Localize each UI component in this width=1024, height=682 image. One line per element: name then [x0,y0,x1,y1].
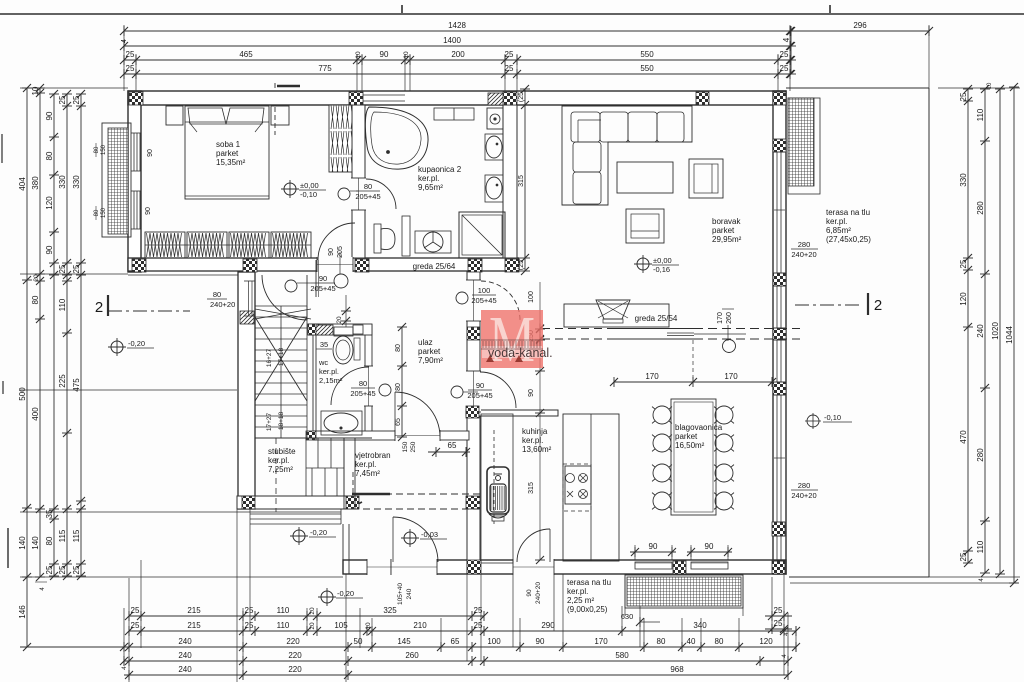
svg-text:-0,20: -0,20 [337,589,354,598]
svg-text:kupaonica 2: kupaonica 2 [418,165,462,174]
svg-text:550: 550 [640,50,654,59]
svg-text:240+20: 240+20 [210,300,235,309]
svg-text:25: 25 [774,606,783,615]
svg-text:40: 40 [687,637,696,646]
svg-text:968: 968 [670,665,684,674]
svg-text:205+45: 205+45 [355,192,380,201]
svg-text:775: 775 [318,64,332,73]
svg-text:80: 80 [45,151,54,160]
svg-text:2: 2 [95,299,103,316]
svg-text:146: 146 [18,605,27,619]
svg-text:65: 65 [395,418,402,426]
svg-text:25: 25 [131,606,140,615]
svg-text:1020: 1020 [991,322,1000,340]
svg-text:330: 330 [72,175,81,189]
svg-text:630: 630 [621,612,634,621]
svg-text:330: 330 [58,175,67,189]
svg-text:330: 330 [959,173,968,187]
svg-text:parket: parket [418,347,441,356]
svg-text:65: 65 [448,441,457,450]
svg-text:325: 325 [383,606,397,615]
svg-text:-0,16: -0,16 [653,265,670,274]
svg-text:17+27: 17+27 [266,412,273,431]
svg-text:13,60m²: 13,60m² [522,445,552,454]
svg-text:120: 120 [959,292,968,306]
svg-text:210: 210 [413,621,427,630]
svg-text:2: 2 [874,297,882,314]
svg-text:240: 240 [178,665,192,674]
svg-text:90: 90 [45,245,54,254]
svg-text:205+45: 205+45 [467,391,492,400]
svg-text:240: 240 [976,324,985,338]
svg-text:110: 110 [277,606,290,615]
svg-text:35: 35 [320,340,328,349]
svg-text:25: 25 [45,565,54,574]
svg-text:115: 115 [72,529,81,542]
svg-text:25: 25 [774,619,783,628]
svg-text:240: 240 [178,637,192,646]
svg-text:±0,00: ±0,00 [653,256,672,265]
svg-text:250: 250 [410,441,417,452]
svg-text:280: 280 [976,201,985,215]
svg-text:150: 150 [101,207,107,218]
svg-text:-0,20: -0,20 [310,528,327,537]
svg-text:404: 404 [18,177,27,191]
svg-text:25: 25 [72,264,81,273]
svg-text:90: 90 [528,389,535,397]
svg-text:110: 110 [976,108,985,121]
svg-text:220: 220 [288,665,302,674]
svg-text:M: M [489,303,535,376]
svg-text:90: 90 [328,248,335,256]
svg-text:boravak: boravak [712,217,741,226]
svg-text:170: 170 [594,637,608,646]
svg-text:20: 20 [33,274,40,282]
svg-text:200: 200 [451,50,465,59]
svg-text:1044: 1044 [1005,326,1014,344]
svg-text:25: 25 [474,621,483,630]
svg-text:±0,00: ±0,00 [300,181,319,190]
svg-text:25: 25 [126,50,135,59]
svg-text:20: 20 [336,316,343,324]
svg-text:80: 80 [395,344,402,352]
svg-text:205+45: 205+45 [310,284,335,293]
svg-text:50: 50 [354,637,363,646]
svg-text:ker.pl.: ker.pl. [418,174,439,183]
svg-text:220: 220 [288,651,302,660]
svg-text:80: 80 [45,536,54,545]
svg-text:100: 100 [528,291,535,303]
svg-text:90: 90 [526,589,533,597]
svg-text:80: 80 [657,637,666,646]
svg-text:205: 205 [337,246,344,258]
svg-text:280: 280 [798,240,811,249]
svg-text:20: 20 [309,607,316,615]
svg-text:340: 340 [693,621,707,630]
svg-text:145: 145 [397,637,411,646]
svg-text:260: 260 [726,312,733,324]
svg-text:170: 170 [717,312,724,324]
svg-text:2,15m²: 2,15m² [319,376,343,385]
svg-text:parket: parket [675,432,698,441]
svg-text:100: 100 [478,286,491,295]
svg-text:315: 315 [518,175,525,187]
svg-text:10: 10 [31,86,40,95]
svg-text:25: 25 [245,606,254,615]
svg-text:-0,20: -0,20 [128,339,145,348]
svg-text:140: 140 [18,536,27,550]
svg-text:25: 25 [131,621,140,630]
svg-text:120: 120 [759,637,773,646]
svg-text:90: 90 [319,274,327,283]
svg-text:ker.pl.: ker.pl. [522,436,543,445]
svg-text:296: 296 [853,21,867,30]
svg-text:150: 150 [101,144,107,155]
svg-text:80: 80 [213,290,221,299]
svg-text:parket: parket [216,149,239,158]
svg-text:25: 25 [959,92,968,101]
svg-text:290: 290 [541,621,555,630]
svg-text:9,65m²: 9,65m² [418,183,443,192]
svg-text:80: 80 [31,295,40,304]
svg-text:315: 315 [528,482,535,494]
svg-text:4: 4 [781,654,788,658]
svg-text:280: 280 [976,448,985,462]
svg-text:80: 80 [94,209,100,216]
svg-text:110: 110 [976,540,985,553]
svg-text:140: 140 [31,536,40,550]
svg-text:240: 240 [406,588,413,599]
svg-text:80: 80 [94,146,100,153]
svg-text:170: 170 [724,372,738,381]
svg-text:400: 400 [31,407,40,421]
svg-text:35: 35 [45,509,54,518]
svg-text:10: 10 [403,51,410,59]
svg-text:225: 225 [58,374,67,388]
svg-text:500: 500 [18,387,27,401]
svg-text:(27,45x0,25): (27,45x0,25) [826,235,871,244]
svg-text:blagovaonica: blagovaonica [675,423,723,432]
svg-text:115: 115 [58,529,67,542]
svg-text:25: 25 [959,259,968,268]
svg-text:25: 25 [126,64,135,73]
svg-text:120: 120 [45,196,54,210]
svg-text:4: 4 [121,666,128,670]
svg-text:25: 25 [959,552,968,561]
svg-text:-0,10: -0,10 [824,413,841,422]
svg-text:10: 10 [987,82,993,89]
svg-text:ker.pl.: ker.pl. [826,217,847,226]
svg-text:25: 25 [474,606,483,615]
svg-text:80: 80 [364,182,372,191]
svg-text:wc: wc [318,358,328,367]
svg-text:20: 20 [309,622,316,630]
svg-text:25: 25 [505,50,514,59]
svg-text:80: 80 [359,379,367,388]
svg-text:280: 280 [798,481,811,490]
svg-text:(9,00x0,25): (9,00x0,25) [567,605,608,614]
svg-text:ulaz: ulaz [418,338,433,347]
svg-text:parket: parket [712,226,735,235]
svg-text:6,85m²: 6,85m² [826,226,851,235]
svg-text:stubište: stubište [268,447,296,456]
svg-text:7,25m²: 7,25m² [268,465,293,474]
svg-text:110: 110 [277,621,290,630]
svg-text:terasa na tlu: terasa na tlu [826,208,870,217]
svg-text:(25: (25 [518,92,525,102]
svg-text:25: 25 [58,264,67,273]
svg-text:240+20: 240+20 [535,582,542,604]
svg-text:terasa na tlu: terasa na tlu [567,578,611,587]
svg-text:240: 240 [178,651,192,660]
svg-text:7,90m²: 7,90m² [418,356,443,365]
svg-text:(25: (25 [518,260,525,270]
svg-text:15,35m²: 15,35m² [216,158,246,167]
svg-text:18+18: 18+18 [278,411,285,430]
svg-text:25: 25 [505,64,514,73]
svg-text:205+45: 205+45 [350,389,375,398]
svg-text:90: 90 [147,149,154,157]
svg-text:550: 550 [640,64,654,73]
svg-text:-0,10: -0,10 [300,190,317,199]
svg-text:2,25 m²: 2,25 m² [567,596,594,605]
svg-text:25: 25 [58,95,67,104]
svg-text:25: 25 [780,50,789,59]
svg-text:65: 65 [451,637,460,646]
svg-text:90: 90 [45,111,54,120]
svg-text:475: 475 [72,378,81,392]
svg-text:4: 4 [121,39,128,43]
svg-text:greda 25/54: greda 25/54 [635,314,678,323]
svg-text:170: 170 [645,372,659,381]
svg-text:110: 110 [58,298,67,311]
svg-text:25: 25 [72,565,81,574]
svg-text:240+20: 240+20 [791,491,816,500]
svg-text:220: 220 [286,637,300,646]
svg-text:215: 215 [187,606,201,615]
svg-text:100: 100 [487,637,501,646]
svg-text:ker.pl.: ker.pl. [355,460,376,469]
svg-text:90: 90 [476,381,484,390]
svg-text:7,45m²: 7,45m² [355,469,380,478]
svg-text:vjetrobran: vjetrobran [355,451,391,460]
svg-text:380: 380 [31,176,40,190]
svg-text:215: 215 [187,621,201,630]
svg-text:90: 90 [649,542,658,551]
svg-text:greda 25/64: greda 25/64 [413,262,456,271]
svg-text:240+20: 240+20 [791,250,816,259]
svg-text:ker.pl.: ker.pl. [319,367,339,376]
svg-text:ker.pl.: ker.pl. [567,587,588,596]
svg-text:25: 25 [780,64,789,73]
svg-text:10: 10 [355,51,362,59]
svg-text:kuhinja: kuhinja [522,427,548,436]
svg-text:465: 465 [239,50,253,59]
svg-text:-0,03: -0,03 [421,530,438,539]
svg-text:1400: 1400 [443,36,461,45]
svg-text:90: 90 [536,637,545,646]
svg-text:29,95m²: 29,95m² [712,235,742,244]
svg-text:90: 90 [145,207,152,215]
svg-text:80: 80 [395,383,402,391]
svg-text:soba 1: soba 1 [216,140,241,149]
svg-text:ker.pl.: ker.pl. [268,456,289,465]
svg-text:16+27: 16+27 [266,348,273,367]
svg-text:105+40: 105+40 [397,583,404,605]
svg-text:80: 80 [715,637,724,646]
svg-text:16,50m²: 16,50m² [675,441,705,450]
svg-text:150: 150 [402,441,409,452]
svg-text:1428: 1428 [448,21,466,30]
svg-text:470: 470 [959,430,968,444]
svg-text:90: 90 [380,50,389,59]
svg-text:17+18: 17+18 [278,347,285,366]
svg-text:25: 25 [245,621,254,630]
svg-text:580: 580 [615,651,629,660]
svg-text:260: 260 [405,651,419,660]
svg-text:25: 25 [58,565,67,574]
svg-text:25: 25 [72,95,81,104]
svg-text:10: 10 [365,622,372,630]
svg-text:90: 90 [705,542,714,551]
